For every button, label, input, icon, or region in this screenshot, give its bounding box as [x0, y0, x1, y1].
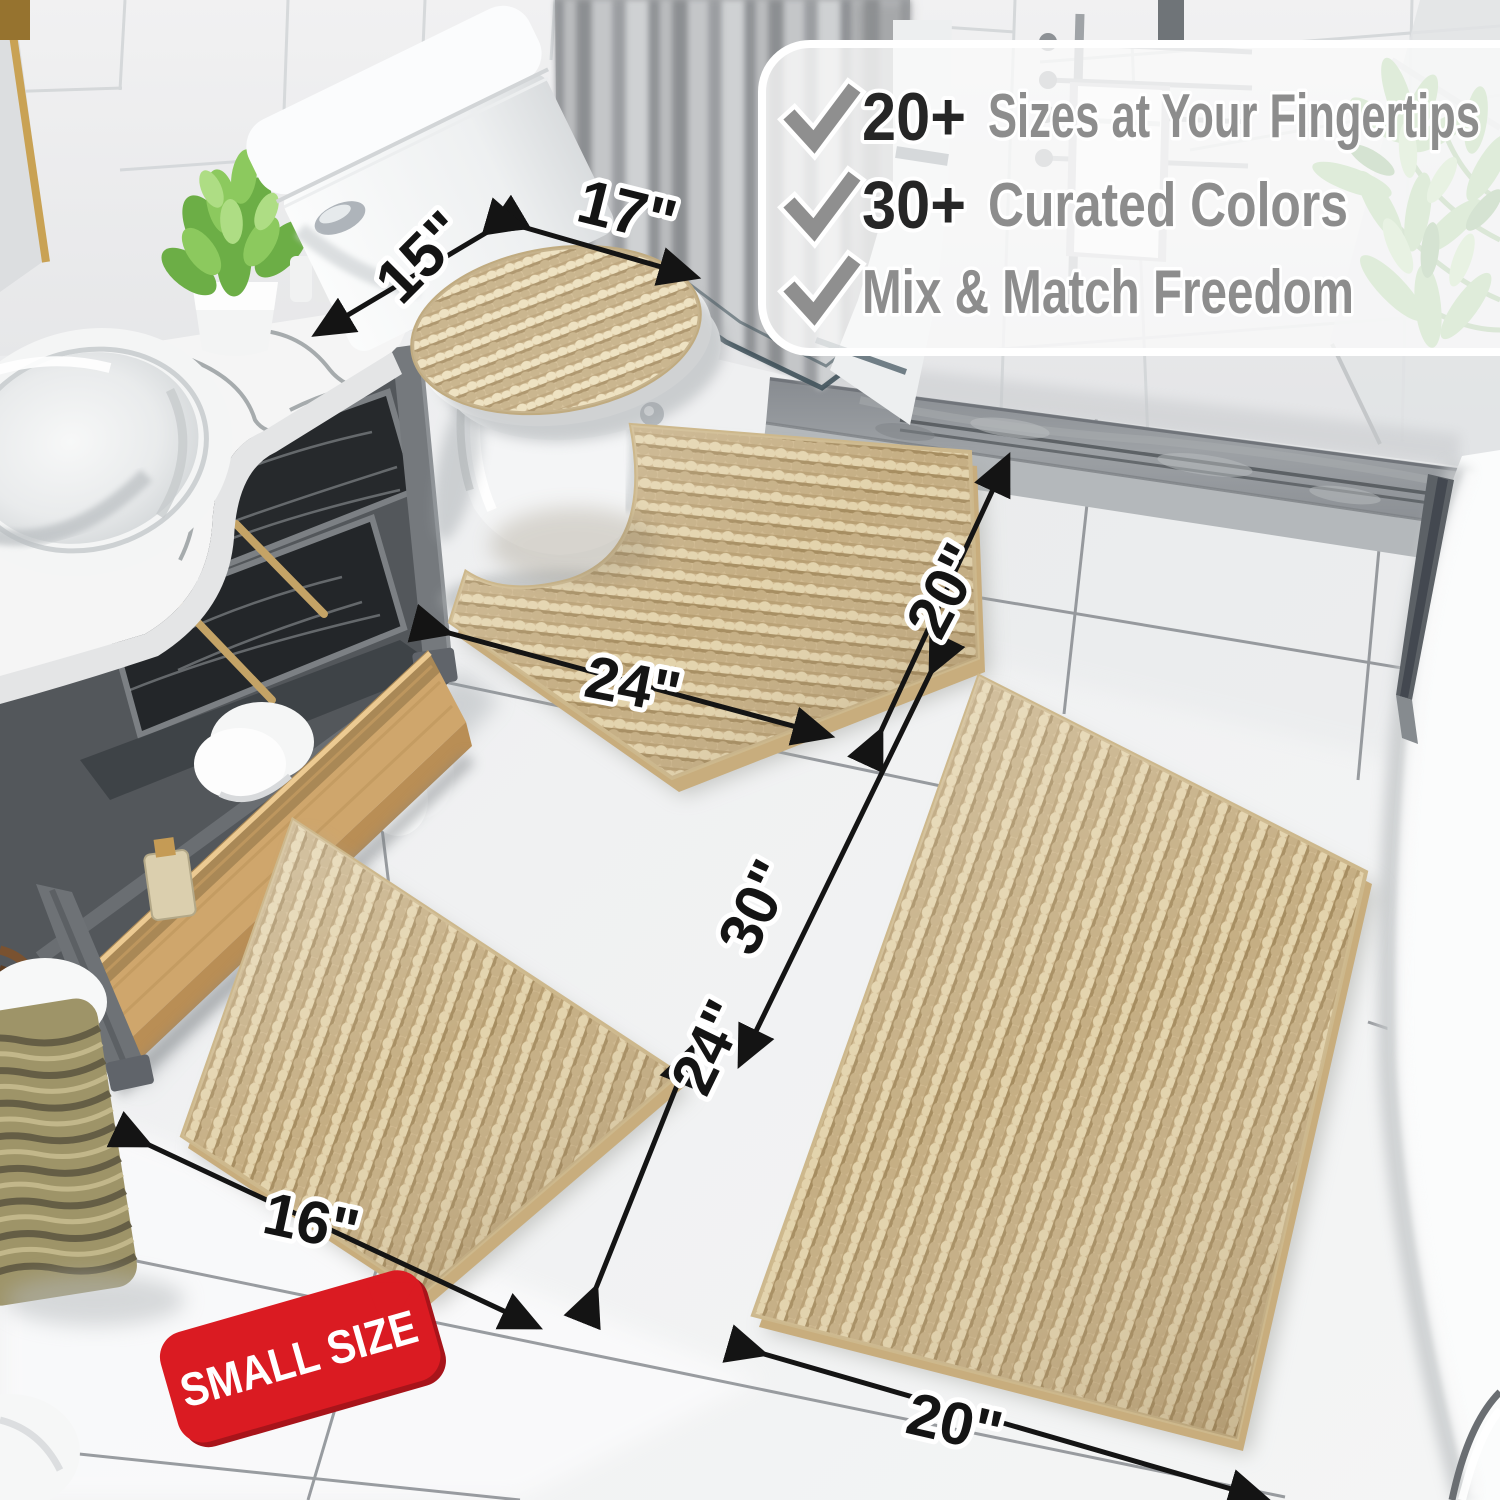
- svg-text:Sizes at Your Fingertips: Sizes at Your Fingertips: [988, 82, 1480, 151]
- svg-text:20+: 20+: [862, 79, 966, 155]
- svg-text:30+: 30+: [862, 167, 966, 243]
- svg-text:Curated Colors: Curated Colors: [988, 171, 1348, 240]
- svg-text:Mix & Match Freedom: Mix & Match Freedom: [862, 258, 1354, 327]
